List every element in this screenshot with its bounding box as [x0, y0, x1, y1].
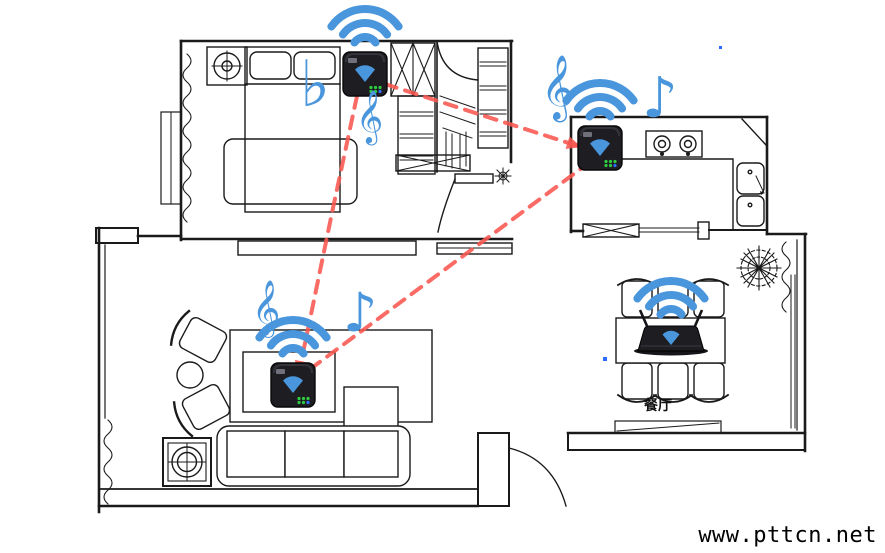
kitchen-speaker [578, 126, 622, 170]
sink [737, 163, 764, 226]
kitchen-speaker-wifi-signal-icon [566, 83, 633, 117]
plant-icon [737, 246, 781, 290]
corner-cabinet [742, 119, 766, 145]
curtain [104, 420, 112, 504]
bedroom-speaker-wifi-signal-icon [331, 9, 398, 43]
door-swing-arc [509, 448, 566, 506]
living-room [96, 228, 566, 512]
door-swing-arc [438, 179, 455, 232]
window [791, 275, 795, 428]
curtain [183, 54, 191, 222]
treble-clef-icon: 𝄞 [356, 89, 383, 145]
stove [646, 131, 702, 157]
living-room-speaker [271, 363, 315, 407]
eighth-note-icon: ♪ [642, 66, 678, 131]
cushion [227, 431, 285, 477]
tv-console [230, 330, 432, 422]
wall-pillar [478, 433, 509, 506]
flower-knob-icon [495, 168, 511, 184]
treble-clef-icon: 𝄞 [541, 55, 574, 122]
floor-speaker [163, 438, 211, 486]
cushion [344, 431, 398, 477]
armchair [168, 309, 230, 366]
floorplan-diagram: ♭𝄞𝄞♪𝄞♪ 餐厅 [0, 0, 885, 553]
treble-clef-icon: 𝄞 [252, 280, 280, 338]
blanket [224, 139, 357, 204]
side-table [177, 362, 203, 388]
sofa [217, 426, 410, 486]
site-watermark: www.pttcn.net [698, 523, 877, 548]
door [455, 174, 493, 183]
blue-dot [719, 46, 722, 49]
nightstand-lamp [207, 47, 247, 85]
cushion [285, 431, 344, 477]
eighth-note-icon: ♪ [343, 281, 377, 344]
curved-wall [437, 41, 478, 80]
balcony [737, 234, 806, 451]
blue-dot [603, 357, 607, 361]
wall [96, 228, 138, 243]
pillow [250, 52, 291, 79]
sofa-chaise [344, 387, 398, 432]
shelf-cabinet [478, 48, 508, 148]
dining-room-label: 餐厅 [643, 397, 672, 414]
wifi-links [292, 84, 590, 377]
curtain [782, 242, 790, 312]
flat-note-icon: ♭ [300, 48, 330, 122]
counter [618, 159, 733, 229]
